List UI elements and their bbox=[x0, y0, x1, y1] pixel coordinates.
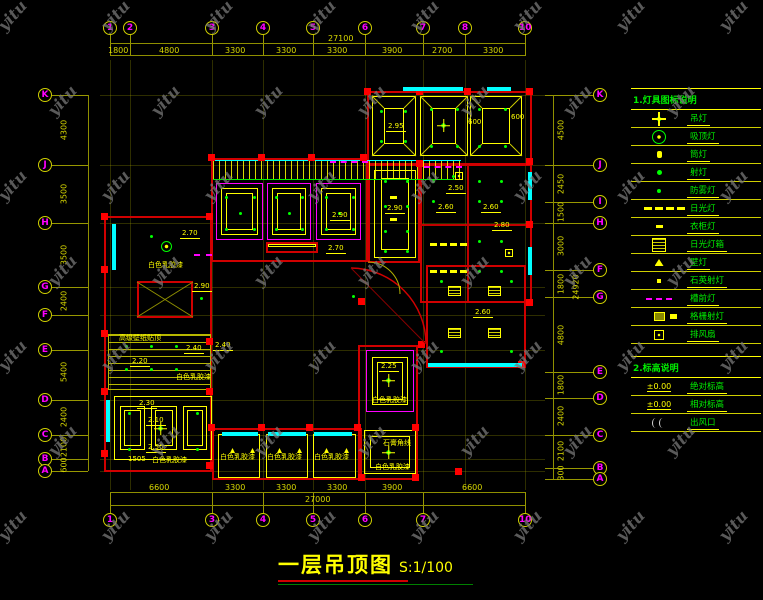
window bbox=[528, 247, 532, 275]
grid-bubble: 3 bbox=[205, 21, 219, 35]
rel-elevation-icon: ±0.00 bbox=[647, 400, 672, 410]
dim-chain-top bbox=[110, 55, 525, 56]
legend-item-label: 壁灯 bbox=[687, 256, 710, 270]
legend-icon-cell bbox=[631, 189, 687, 193]
window bbox=[222, 432, 258, 436]
light-symbol bbox=[440, 350, 443, 353]
cove-light-icon bbox=[646, 298, 672, 300]
grid-stem bbox=[263, 492, 264, 514]
window bbox=[268, 432, 306, 436]
dim-total-line-bottom bbox=[110, 505, 525, 506]
grid-stem bbox=[52, 350, 88, 351]
dim-label: 1800 bbox=[557, 375, 566, 395]
light-symbol bbox=[500, 180, 503, 183]
title-underline-red bbox=[278, 580, 408, 582]
legend-icon-cell bbox=[631, 238, 687, 252]
light-symbol bbox=[380, 140, 383, 143]
dim-label: 3300 bbox=[225, 46, 245, 55]
grid-bubble: A bbox=[38, 464, 52, 478]
legend-icon-cell bbox=[631, 151, 687, 158]
grid-bubble: 4 bbox=[256, 513, 270, 527]
exhaust-fan-icon bbox=[654, 330, 664, 340]
light-symbol bbox=[352, 196, 355, 199]
plan-annotation: 600 bbox=[468, 118, 481, 126]
ceiling-coffer bbox=[187, 410, 203, 446]
plan-annotation: 2.30 bbox=[137, 399, 157, 409]
grid-bubble: C bbox=[38, 428, 52, 442]
plan-annotation: 2.70 bbox=[326, 244, 346, 254]
legend-icon-cell: ±0.00 bbox=[631, 382, 687, 392]
grid-bubble: D bbox=[593, 391, 607, 405]
legend-item: ±0.00相对标高 bbox=[631, 396, 761, 414]
plan-annotation: 2.60 bbox=[481, 203, 501, 213]
dim-label: 5400 bbox=[60, 362, 69, 382]
exhaust-fan-symbol bbox=[455, 172, 463, 180]
light-symbol bbox=[456, 108, 459, 111]
legend-item-label: 格栅射灯 bbox=[687, 310, 727, 324]
grid-bubble: 5 bbox=[306, 513, 320, 527]
light-symbol bbox=[384, 250, 387, 253]
grid-bubble: H bbox=[38, 216, 52, 230]
legend-section2-title: 2.标高说明 bbox=[631, 356, 761, 378]
plan-annotation: 2.60 bbox=[473, 308, 493, 318]
grid-stem bbox=[52, 223, 88, 224]
grid-bubble: 5 bbox=[306, 21, 320, 35]
legend-item-label: 出风口 bbox=[687, 416, 719, 430]
column-marker bbox=[526, 299, 533, 306]
light-symbol bbox=[432, 200, 435, 203]
dim-total-label: 24920 bbox=[572, 274, 581, 299]
light-symbol bbox=[253, 196, 256, 199]
column-marker bbox=[526, 88, 533, 95]
legend-item: 射灯 bbox=[631, 164, 761, 182]
exhaust-fan-symbol bbox=[505, 249, 513, 257]
legend-icon-cell bbox=[631, 112, 687, 126]
plan-annotation: 2.95 bbox=[386, 122, 406, 132]
grid-stem bbox=[52, 95, 88, 96]
legend-panel: 1.灯具图标说明 吊灯吸顶灯筒灯射灯防雾灯日光灯衣柜灯日光灯箱壁灯石英射灯槽前灯… bbox=[631, 88, 761, 432]
legend-item: 日光灯箱 bbox=[631, 236, 761, 254]
light-symbol bbox=[196, 412, 199, 415]
grid-bubble: 1 bbox=[103, 21, 117, 35]
dim-chain-right bbox=[553, 95, 554, 479]
ceiling-coffer bbox=[268, 244, 316, 247]
column-marker bbox=[412, 474, 419, 481]
column-marker bbox=[258, 154, 265, 161]
plan-annotation: 白色乳胶漆 bbox=[314, 452, 349, 462]
legend-gap bbox=[631, 344, 761, 356]
grid-stem bbox=[423, 34, 424, 56]
grid-bubble: 1 bbox=[103, 513, 117, 527]
legend-item: ±0.00绝对标高 bbox=[631, 378, 761, 396]
fluorescent-symbol bbox=[460, 270, 467, 273]
column-marker bbox=[258, 424, 265, 431]
grid-stem bbox=[212, 34, 213, 56]
legend-item-label: 防雾灯 bbox=[687, 184, 719, 198]
dim-label: 2100 bbox=[60, 437, 69, 457]
grid-bubble: I bbox=[593, 195, 607, 209]
legend-item-label: 衣柜灯 bbox=[687, 220, 719, 234]
column-marker bbox=[101, 388, 108, 395]
light-symbol bbox=[510, 350, 513, 353]
window bbox=[403, 87, 463, 91]
dim-label: 2400 bbox=[60, 291, 69, 311]
legend-item-label: 排风扇 bbox=[687, 328, 719, 342]
grille-spotlight-icon bbox=[654, 312, 665, 321]
plan-annotation: 2.60 bbox=[436, 203, 456, 213]
dim-total-label: 27000 bbox=[305, 495, 330, 504]
dim-label: 3300 bbox=[483, 46, 503, 55]
dim-label: 3500 bbox=[60, 184, 69, 204]
light-symbol bbox=[432, 180, 435, 183]
downlight-icon bbox=[657, 151, 662, 158]
light-symbol bbox=[384, 180, 387, 183]
column-marker bbox=[464, 88, 471, 95]
column-marker bbox=[418, 341, 425, 348]
dim-label: 3900 bbox=[382, 483, 402, 492]
grid-stem bbox=[263, 34, 264, 56]
grid-bubble: 7 bbox=[416, 21, 430, 35]
dim-label: 4300 bbox=[60, 120, 69, 140]
legend-item: 衣柜灯 bbox=[631, 218, 761, 236]
hatched-box bbox=[137, 281, 193, 318]
light-symbol bbox=[478, 108, 481, 111]
light-symbol bbox=[200, 297, 203, 300]
light-symbol bbox=[275, 196, 278, 199]
column-marker bbox=[206, 388, 213, 395]
grille-light-symbol bbox=[488, 328, 501, 338]
light-symbol bbox=[440, 280, 443, 283]
legend-icon-cell bbox=[631, 170, 687, 175]
grid-bubble: C bbox=[593, 428, 607, 442]
legend-item: 壁灯 bbox=[631, 254, 761, 272]
fluorescent-symbol bbox=[430, 270, 437, 273]
grid-bubble: 10 bbox=[518, 513, 532, 527]
dim-label: 3900 bbox=[382, 46, 402, 55]
grille-light-symbol bbox=[448, 286, 461, 296]
grid-stem bbox=[365, 34, 366, 56]
light-symbol bbox=[301, 228, 304, 231]
light-symbol bbox=[352, 295, 355, 298]
legend-item: 防雾灯 bbox=[631, 182, 761, 200]
light-symbol bbox=[510, 280, 513, 283]
title-underline-green bbox=[278, 584, 473, 585]
plan-annotation: 2.40 bbox=[184, 344, 204, 354]
light-symbol bbox=[275, 228, 278, 231]
light-symbol bbox=[253, 228, 256, 231]
grid-bubble: 3 bbox=[205, 513, 219, 527]
grid-stem bbox=[52, 315, 88, 316]
grid-bubble: J bbox=[38, 158, 52, 172]
chandelier-icon bbox=[652, 112, 666, 126]
grid-stem bbox=[52, 459, 88, 460]
wall-lamp-icon bbox=[655, 259, 664, 266]
column-marker bbox=[306, 424, 313, 431]
window bbox=[428, 363, 522, 367]
fluorescent-symbol bbox=[450, 270, 457, 273]
plan-annotation: 白色乳胶漆 bbox=[176, 372, 211, 382]
grid-bubble: G bbox=[593, 290, 607, 304]
fluorescent-symbol bbox=[390, 196, 397, 199]
grid-stem bbox=[52, 471, 88, 472]
column-marker bbox=[206, 462, 213, 469]
grid-stem bbox=[545, 479, 593, 480]
grid-bubble: F bbox=[593, 263, 607, 277]
light-symbol bbox=[150, 368, 153, 371]
dim-label: 1800 bbox=[108, 46, 128, 55]
dim-label: 3000 bbox=[557, 236, 566, 256]
legend-icon-cell bbox=[631, 279, 687, 283]
light-symbol bbox=[128, 412, 131, 415]
plan-annotation: 2.50 bbox=[146, 443, 166, 453]
column-marker bbox=[208, 154, 215, 161]
plan-annotation: 白色乳胶漆 bbox=[220, 452, 255, 462]
dim-label: 6600 bbox=[462, 483, 482, 492]
light-symbol bbox=[325, 228, 328, 231]
dim-label: 600 bbox=[60, 457, 69, 472]
wardrobe-lamp-icon bbox=[656, 225, 663, 228]
column-marker bbox=[101, 213, 108, 220]
dim-chain-left bbox=[88, 95, 89, 471]
legend-item: 格栅射灯 bbox=[631, 308, 761, 326]
light-symbol bbox=[196, 448, 199, 451]
dim-label: 300 bbox=[557, 465, 566, 480]
light-symbol bbox=[384, 230, 387, 233]
light-symbol bbox=[478, 145, 481, 148]
legend-item: 筒灯 bbox=[631, 146, 761, 164]
grid-bubble: A bbox=[593, 472, 607, 486]
grid-bubble: 4 bbox=[256, 21, 270, 35]
plan-annotation: 白色乳胶漆 bbox=[375, 462, 410, 472]
plan-annotation: 白色乳胶漆 bbox=[152, 455, 187, 465]
dim-label: 3300 bbox=[276, 46, 296, 55]
grid-stem bbox=[52, 165, 88, 166]
dim-label: 3300 bbox=[327, 483, 347, 492]
abs-elevation-icon: ±0.00 bbox=[647, 382, 672, 392]
grid-bubble: F bbox=[38, 308, 52, 322]
column-marker bbox=[360, 154, 367, 161]
chandelier-symbol bbox=[382, 374, 395, 387]
spotlight-icon bbox=[657, 170, 662, 175]
grid-stem bbox=[313, 34, 314, 56]
air-outlet-icon bbox=[651, 418, 667, 428]
dim-label: 1500 bbox=[557, 202, 566, 222]
column-marker bbox=[208, 424, 215, 431]
grid-bubble: 6 bbox=[358, 21, 372, 35]
grid-bubble: K bbox=[38, 88, 52, 102]
grid-bubble: G bbox=[38, 280, 52, 294]
grid-stem bbox=[130, 34, 131, 56]
column-marker bbox=[101, 450, 108, 457]
cad-viewport: 123456781013456710KJHGFEDCBAKJIHFGEDCBA1… bbox=[0, 0, 763, 600]
legend-item-label: 绝对标高 bbox=[687, 380, 727, 394]
light-symbol bbox=[406, 180, 409, 183]
title-scale: S:1/100 bbox=[399, 560, 453, 576]
light-symbol bbox=[301, 196, 304, 199]
legend-item-label: 石英射灯 bbox=[687, 274, 727, 288]
grid-stem bbox=[465, 34, 466, 56]
dim-label: 2400 bbox=[60, 407, 69, 427]
grille-light-symbol bbox=[448, 328, 461, 338]
grid-stem bbox=[52, 287, 88, 288]
grid-stem bbox=[212, 492, 213, 514]
plan-annotation: 白色乳胶漆 bbox=[372, 395, 407, 405]
light-symbol bbox=[504, 145, 507, 148]
light-symbol bbox=[406, 250, 409, 253]
legend-item: 槽前灯 bbox=[631, 290, 761, 308]
column-marker bbox=[206, 338, 213, 345]
dim-label: 3300 bbox=[327, 46, 347, 55]
ceiling-coffer bbox=[482, 108, 510, 144]
grid-bubble: E bbox=[38, 343, 52, 357]
dim-label: 1800 bbox=[557, 274, 566, 294]
plan-annotation: 2.10 bbox=[146, 416, 166, 426]
grid-bubble: 10 bbox=[518, 21, 532, 35]
fluorescent-symbol bbox=[460, 243, 467, 246]
cove-light-symbol bbox=[424, 166, 462, 168]
light-symbol bbox=[288, 212, 291, 215]
window bbox=[106, 400, 110, 442]
grid-stem bbox=[52, 435, 88, 436]
grid-stem bbox=[525, 492, 526, 514]
plan-annotation: 2.40 bbox=[213, 341, 233, 351]
dim-label: 2700 bbox=[432, 46, 452, 55]
legend-section1-title: 1.灯具图标说明 bbox=[631, 88, 761, 110]
column-marker bbox=[412, 424, 419, 431]
column-marker bbox=[308, 154, 315, 161]
grid-stem bbox=[110, 492, 111, 514]
dim-label: 4500 bbox=[557, 120, 566, 140]
plan-annotation: 2.70 bbox=[180, 229, 200, 239]
legend-item: 排风扇 bbox=[631, 326, 761, 344]
light-symbol bbox=[175, 345, 178, 348]
plan-annotation: 石膏角线 bbox=[383, 438, 411, 448]
grid-stem bbox=[423, 492, 424, 514]
grid-line-vertical bbox=[313, 60, 314, 490]
light-symbol bbox=[225, 196, 228, 199]
window bbox=[112, 224, 116, 270]
plan-annotation: 2.20 bbox=[130, 357, 150, 367]
light-symbol bbox=[325, 196, 328, 199]
legend-item-label: 吸顶灯 bbox=[687, 130, 719, 144]
dim-label: 4800 bbox=[557, 325, 566, 345]
cove-light-symbol bbox=[330, 161, 368, 163]
legend-item: 吊灯 bbox=[631, 110, 761, 128]
cove-light-symbol bbox=[194, 254, 212, 256]
fluorescent-symbol bbox=[440, 270, 447, 273]
light-symbol bbox=[150, 345, 153, 348]
window bbox=[528, 172, 532, 200]
column-marker bbox=[358, 474, 365, 481]
grid-bubble: E bbox=[593, 365, 607, 379]
legend-item: 出风口 bbox=[631, 414, 761, 432]
column-marker bbox=[101, 330, 108, 337]
dim-label: 6600 bbox=[149, 483, 169, 492]
chandelier-symbol bbox=[437, 119, 450, 132]
legend-item-label: 相对标高 bbox=[687, 398, 727, 412]
light-symbol bbox=[404, 140, 407, 143]
grid-bubble: 2 bbox=[123, 21, 137, 35]
plan-annotation: 白色乳胶漆 bbox=[148, 260, 183, 270]
fluorescent-lightbox-icon bbox=[652, 238, 666, 252]
light-symbol bbox=[175, 368, 178, 371]
legend-item-label: 筒灯 bbox=[687, 148, 710, 162]
fluorescent-lamp-icon bbox=[655, 207, 663, 210]
legend-item: 日光灯 bbox=[631, 200, 761, 218]
legend-icon-cell bbox=[631, 330, 687, 340]
grid-bubble: K bbox=[593, 88, 607, 102]
light-symbol bbox=[406, 230, 409, 233]
wall-segment bbox=[420, 224, 532, 226]
legend-item-label: 射灯 bbox=[687, 166, 710, 180]
light-symbol bbox=[406, 205, 409, 208]
grid-stem bbox=[365, 492, 366, 514]
grid-bubble: D bbox=[38, 393, 52, 407]
slatted-ceiling bbox=[213, 160, 461, 180]
window bbox=[314, 432, 352, 436]
column-marker bbox=[364, 88, 371, 95]
dim-label: 2100 bbox=[557, 441, 566, 461]
light-symbol bbox=[125, 345, 128, 348]
legend-icon-cell bbox=[631, 259, 687, 266]
column-marker bbox=[206, 213, 213, 220]
grille-light-symbol bbox=[488, 286, 501, 296]
plan-annotation: 2.90 bbox=[192, 282, 212, 292]
plan-annotation: 高级壁纸贴顶 bbox=[119, 333, 161, 343]
fluorescent-symbol bbox=[390, 218, 397, 221]
light-symbol bbox=[380, 110, 383, 113]
dim-label: 3500 bbox=[60, 245, 69, 265]
window bbox=[487, 87, 511, 91]
light-symbol bbox=[239, 212, 242, 215]
legend-item: 石英射灯 bbox=[631, 272, 761, 290]
plan-annotation: 白色乳胶漆 bbox=[267, 452, 302, 462]
light-symbol bbox=[500, 240, 503, 243]
light-symbol bbox=[125, 368, 128, 371]
fluorescent-symbol bbox=[430, 243, 437, 246]
dim-label: 3300 bbox=[225, 483, 245, 492]
column-marker bbox=[101, 266, 108, 273]
legend-item-label: 槽前灯 bbox=[687, 292, 719, 306]
grid-bubble: 6 bbox=[358, 513, 372, 527]
column-marker bbox=[526, 221, 533, 228]
legend-icon-cell bbox=[631, 312, 687, 321]
light-symbol bbox=[478, 180, 481, 183]
column-marker bbox=[416, 160, 423, 167]
column-marker bbox=[455, 468, 462, 475]
ceiling-lamp-icon bbox=[652, 130, 666, 144]
column-marker bbox=[354, 424, 361, 431]
grid-bubble: 8 bbox=[458, 21, 472, 35]
legend-item-label: 日光灯箱 bbox=[687, 238, 727, 252]
light-symbol bbox=[504, 108, 507, 111]
grid-bubble: 7 bbox=[416, 513, 430, 527]
legend-item: 吸顶灯 bbox=[631, 128, 761, 146]
legend-elevation-list: ±0.00绝对标高±0.00相对标高出风口 bbox=[631, 378, 761, 432]
column-marker bbox=[358, 298, 365, 305]
drawing-title: 一层吊顶图S:1/100 bbox=[278, 549, 498, 585]
plan-annotation: 2.80 bbox=[492, 221, 512, 231]
fluorescent-symbol bbox=[440, 243, 447, 246]
quartz-spotlight-icon bbox=[657, 279, 661, 283]
dim-label: 3300 bbox=[276, 483, 296, 492]
legend-icon-cell bbox=[631, 418, 687, 428]
ceiling-lamp-symbol bbox=[161, 241, 172, 252]
dim-label: 4800 bbox=[159, 46, 179, 55]
light-symbol bbox=[430, 108, 433, 111]
wall-segment bbox=[467, 165, 469, 301]
dim-total-line-top bbox=[110, 43, 525, 44]
